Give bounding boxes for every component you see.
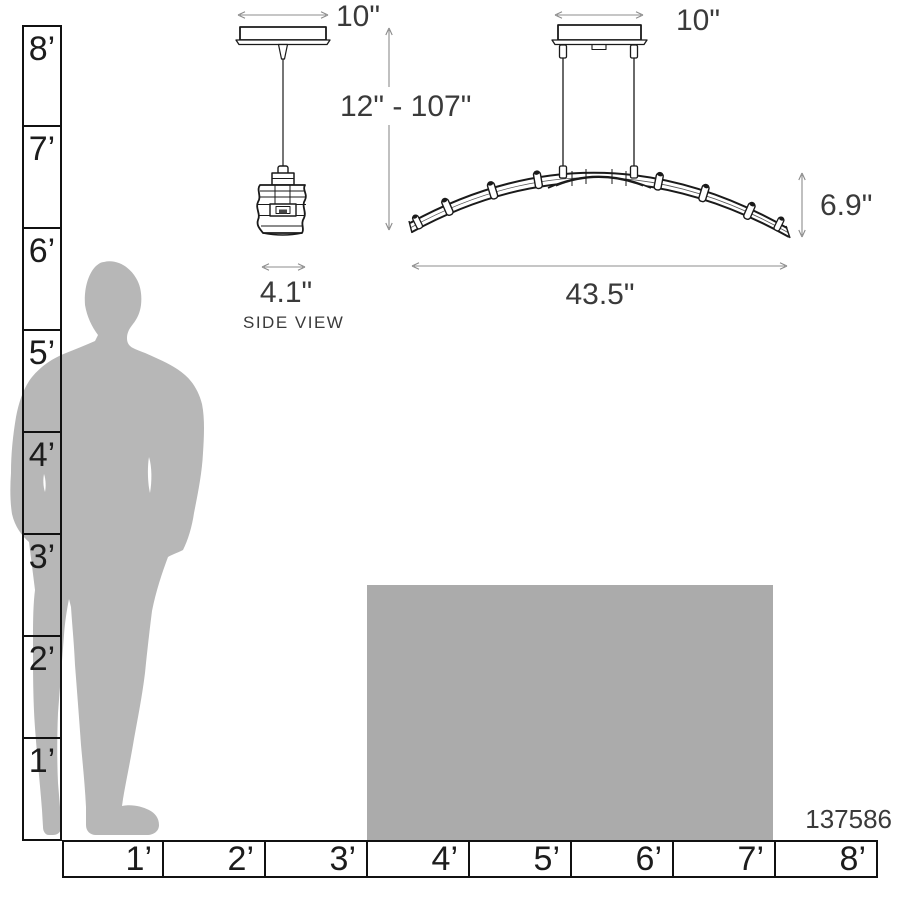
canopy [240,27,326,40]
width-ruler-cell: 2’ [164,840,266,878]
height-ruler-cell: 7’ [22,127,62,229]
width-ruler-cell: 7’ [674,840,776,878]
width-ruler-cell: 6’ [572,840,674,878]
linear-fixture-front-view-drawing [409,25,790,238]
fixture-width-label: 43.5" [550,280,650,310]
fixture-height-label: 6.9" [820,191,872,221]
height-ruler-cell: 1’ [22,739,62,841]
canopy [558,25,641,40]
side-canopy-width-label: 10" [336,2,380,32]
diagram-artwork [0,0,900,900]
arch-clip [533,170,543,189]
width-ruler-cell: 8’ [776,840,878,878]
dimension-lines [238,12,805,270]
arch-clip [698,183,710,202]
height-ruler-cell: 3’ [22,535,62,637]
diagram-canvas: 8’ 7’ 6’ 5’ 4’ 3’ 2’ 1’ 1’ 2’ 3’ 4’ 5’ 6… [0,0,900,900]
side-view-caption: SIDE VIEW [243,313,333,333]
width-ruler-cell: 4’ [368,840,470,878]
width-ruler-cell: 5’ [470,840,572,878]
width-ruler-cell: 3’ [266,840,368,878]
height-ruler-cell: 5’ [22,331,62,433]
height-ruler-cell: 8’ [22,25,62,127]
shade-width-label: 4.1" [256,278,316,308]
width-ruler: 1’ 2’ 3’ 4’ 5’ 6’ 7’ 8’ [62,840,878,878]
suspension-range-label: 12" - 107" [340,92,460,122]
pendant-side-view-drawing [236,27,330,235]
front-canopy-width-label: 10" [676,6,720,36]
strain-relief [279,45,288,60]
arch-clip [486,180,498,199]
product-number: 137586 [780,804,892,835]
glass-shade [257,166,306,235]
height-ruler-cell: 4’ [22,433,62,535]
width-ruler-cell: 1’ [62,840,164,878]
height-ruler-cell: 6’ [22,229,62,331]
arch-clip [654,171,664,190]
arch-clip [773,215,785,231]
height-ruler: 8’ 7’ 6’ 5’ 4’ 3’ 2’ 1’ [22,25,62,841]
height-ruler-cell: 2’ [22,637,62,739]
